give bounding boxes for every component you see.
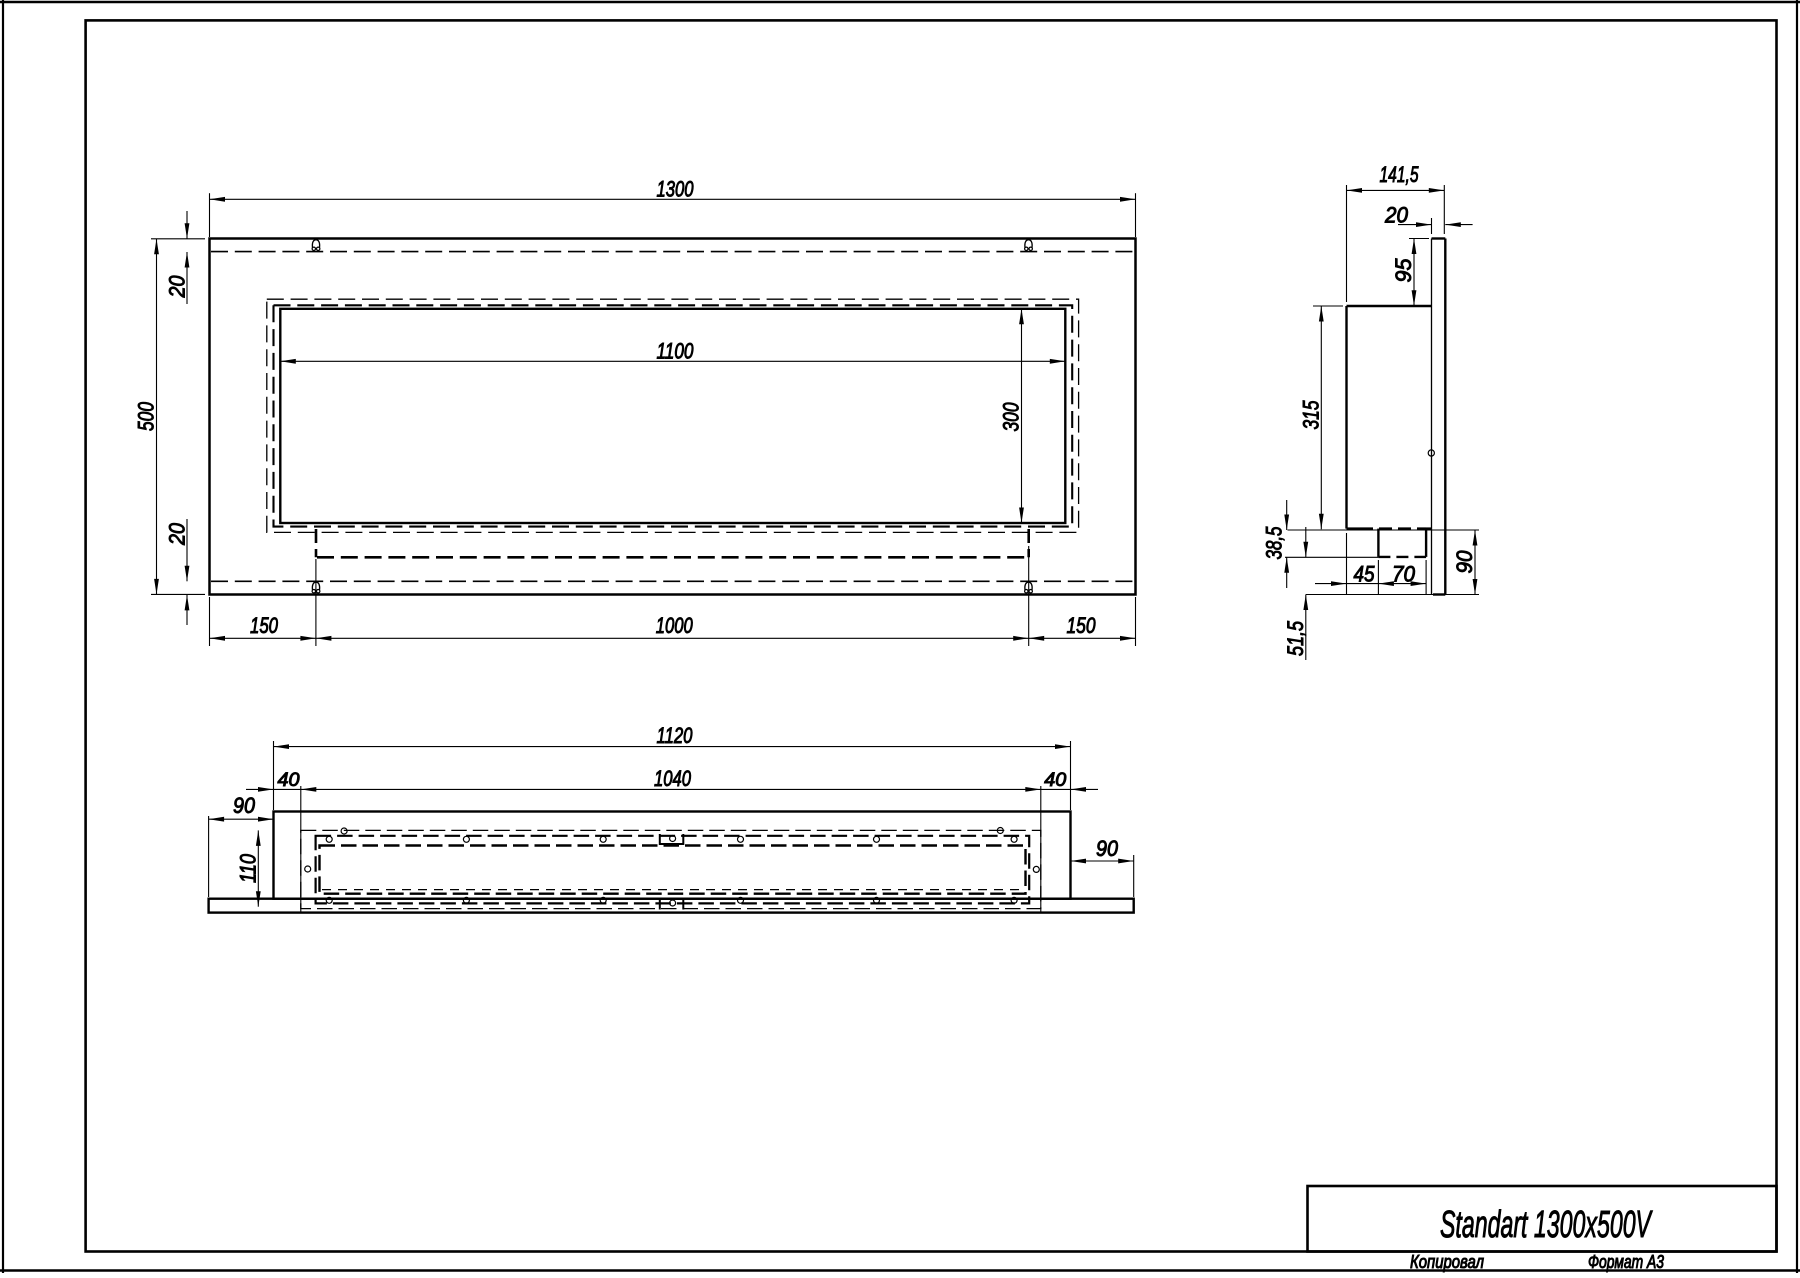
svg-text:Standart 1300x500V: Standart 1300x500V (1440, 1204, 1653, 1246)
svg-text:150: 150 (250, 613, 278, 638)
svg-text:150: 150 (1067, 613, 1096, 638)
svg-text:1100: 1100 (657, 338, 694, 363)
svg-text:300: 300 (999, 402, 1024, 431)
svg-text:20: 20 (164, 275, 189, 298)
svg-text:141,5: 141,5 (1380, 162, 1419, 187)
svg-text:40: 40 (278, 770, 300, 791)
svg-text:38,5: 38,5 (1262, 526, 1287, 559)
svg-text:315: 315 (1299, 400, 1324, 429)
svg-text:45: 45 (1354, 562, 1375, 587)
svg-text:1040: 1040 (654, 766, 691, 791)
svg-text:90: 90 (233, 793, 255, 818)
svg-text:40: 40 (1044, 770, 1066, 791)
svg-text:Копировал: Копировал (1410, 1252, 1484, 1272)
svg-text:110: 110 (236, 854, 261, 883)
svg-text:500: 500 (134, 402, 159, 431)
svg-text:51,5: 51,5 (1283, 621, 1308, 656)
svg-text:Формат А3: Формат А3 (1588, 1252, 1664, 1272)
svg-text:95: 95 (1391, 258, 1416, 282)
svg-text:70: 70 (1392, 562, 1415, 587)
svg-text:1120: 1120 (657, 723, 693, 748)
svg-text:90: 90 (1096, 836, 1118, 861)
svg-text:1300: 1300 (657, 177, 694, 202)
svg-text:90: 90 (1452, 550, 1477, 573)
svg-text:20: 20 (1384, 203, 1408, 228)
svg-text:20: 20 (164, 523, 189, 546)
svg-text:1000: 1000 (656, 613, 693, 638)
